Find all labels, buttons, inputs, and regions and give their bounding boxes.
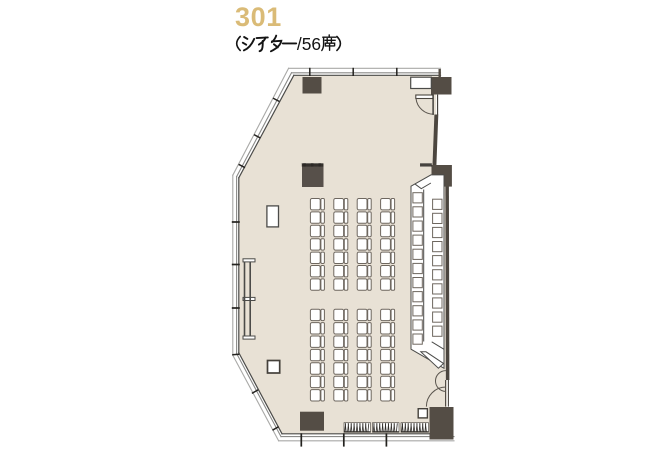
svg-text:/56: /56 (297, 34, 321, 54)
